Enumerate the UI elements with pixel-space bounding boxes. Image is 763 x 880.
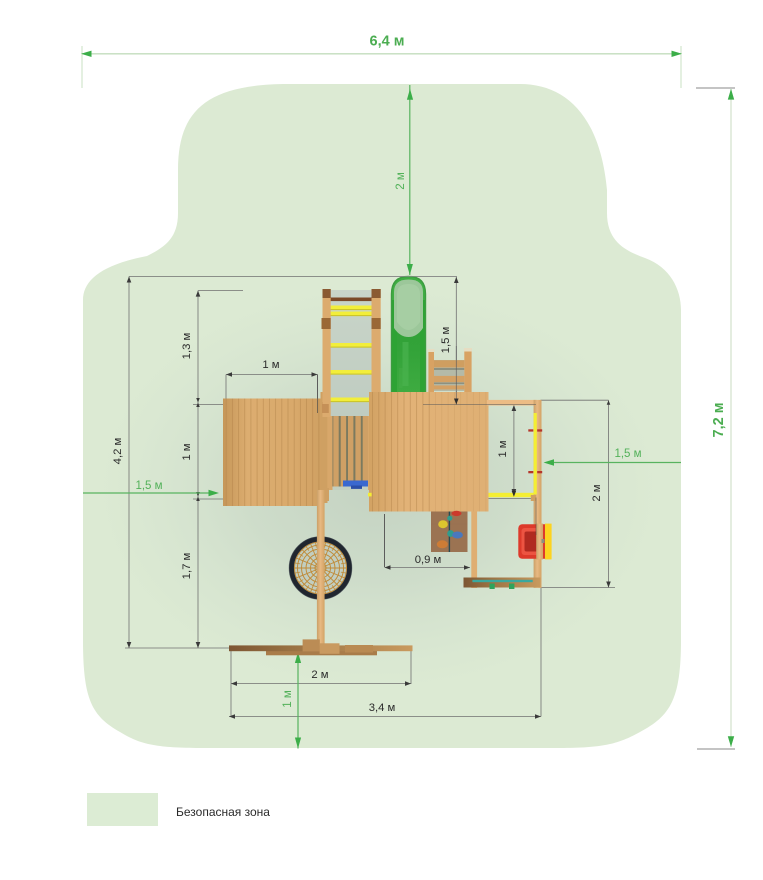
svg-text:2 м: 2 м xyxy=(591,484,603,501)
svg-text:1 м: 1 м xyxy=(262,359,279,371)
svg-text:2 м: 2 м xyxy=(311,669,328,681)
svg-text:1,5 м: 1,5 м xyxy=(440,327,452,354)
svg-text:2 м: 2 м xyxy=(395,172,407,190)
svg-text:1,3 м: 1,3 м xyxy=(181,333,193,360)
svg-text:3,4 м: 3,4 м xyxy=(369,702,396,714)
svg-text:1,7 м: 1,7 м xyxy=(181,553,193,580)
svg-text:6,4 м: 6,4 м xyxy=(370,34,405,50)
svg-text:1,5 м: 1,5 м xyxy=(135,480,162,492)
svg-text:1,5 м: 1,5 м xyxy=(614,448,641,460)
svg-text:1 м: 1 м xyxy=(181,443,193,460)
svg-text:1 м: 1 м xyxy=(282,690,294,708)
svg-text:Безопасная зона: Безопасная зона xyxy=(176,805,270,819)
svg-text:0,9 м: 0,9 м xyxy=(415,554,442,566)
svg-text:4,2 м: 4,2 м xyxy=(112,438,124,465)
svg-text:7,2 м: 7,2 м xyxy=(711,403,727,438)
svg-text:1 м: 1 м xyxy=(497,440,509,457)
